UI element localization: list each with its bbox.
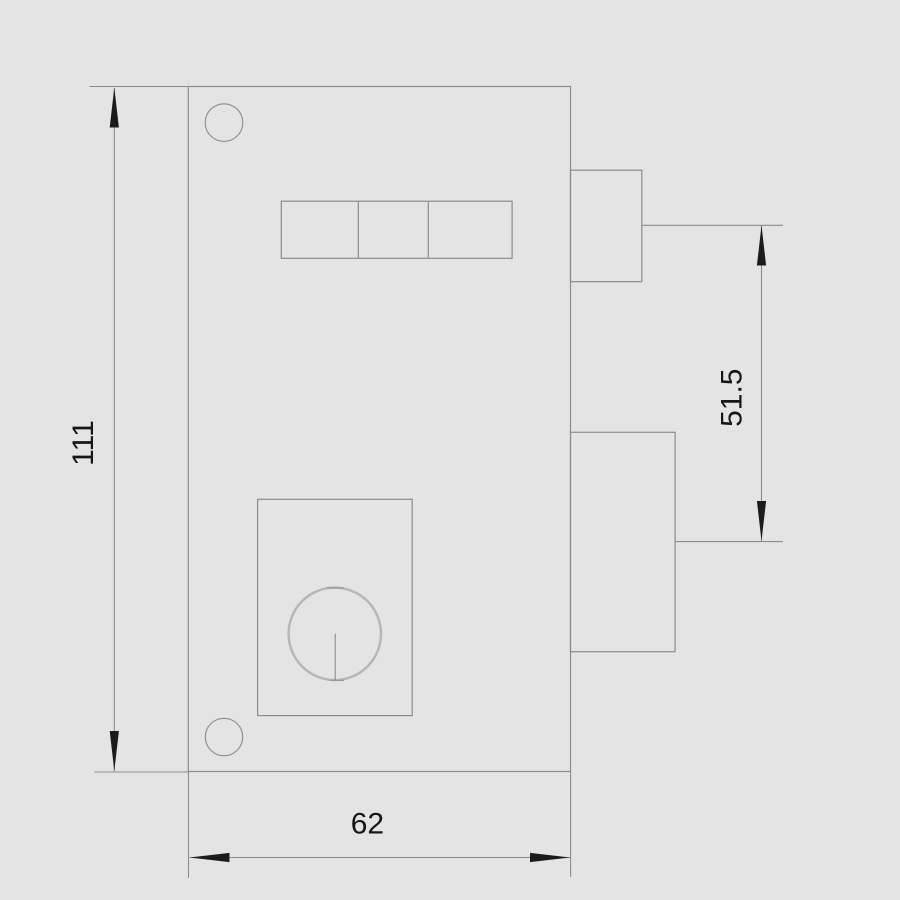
svg-text:51.5: 51.5 (715, 369, 748, 427)
svg-text:111: 111 (67, 420, 100, 466)
svg-text:62: 62 (351, 808, 384, 841)
